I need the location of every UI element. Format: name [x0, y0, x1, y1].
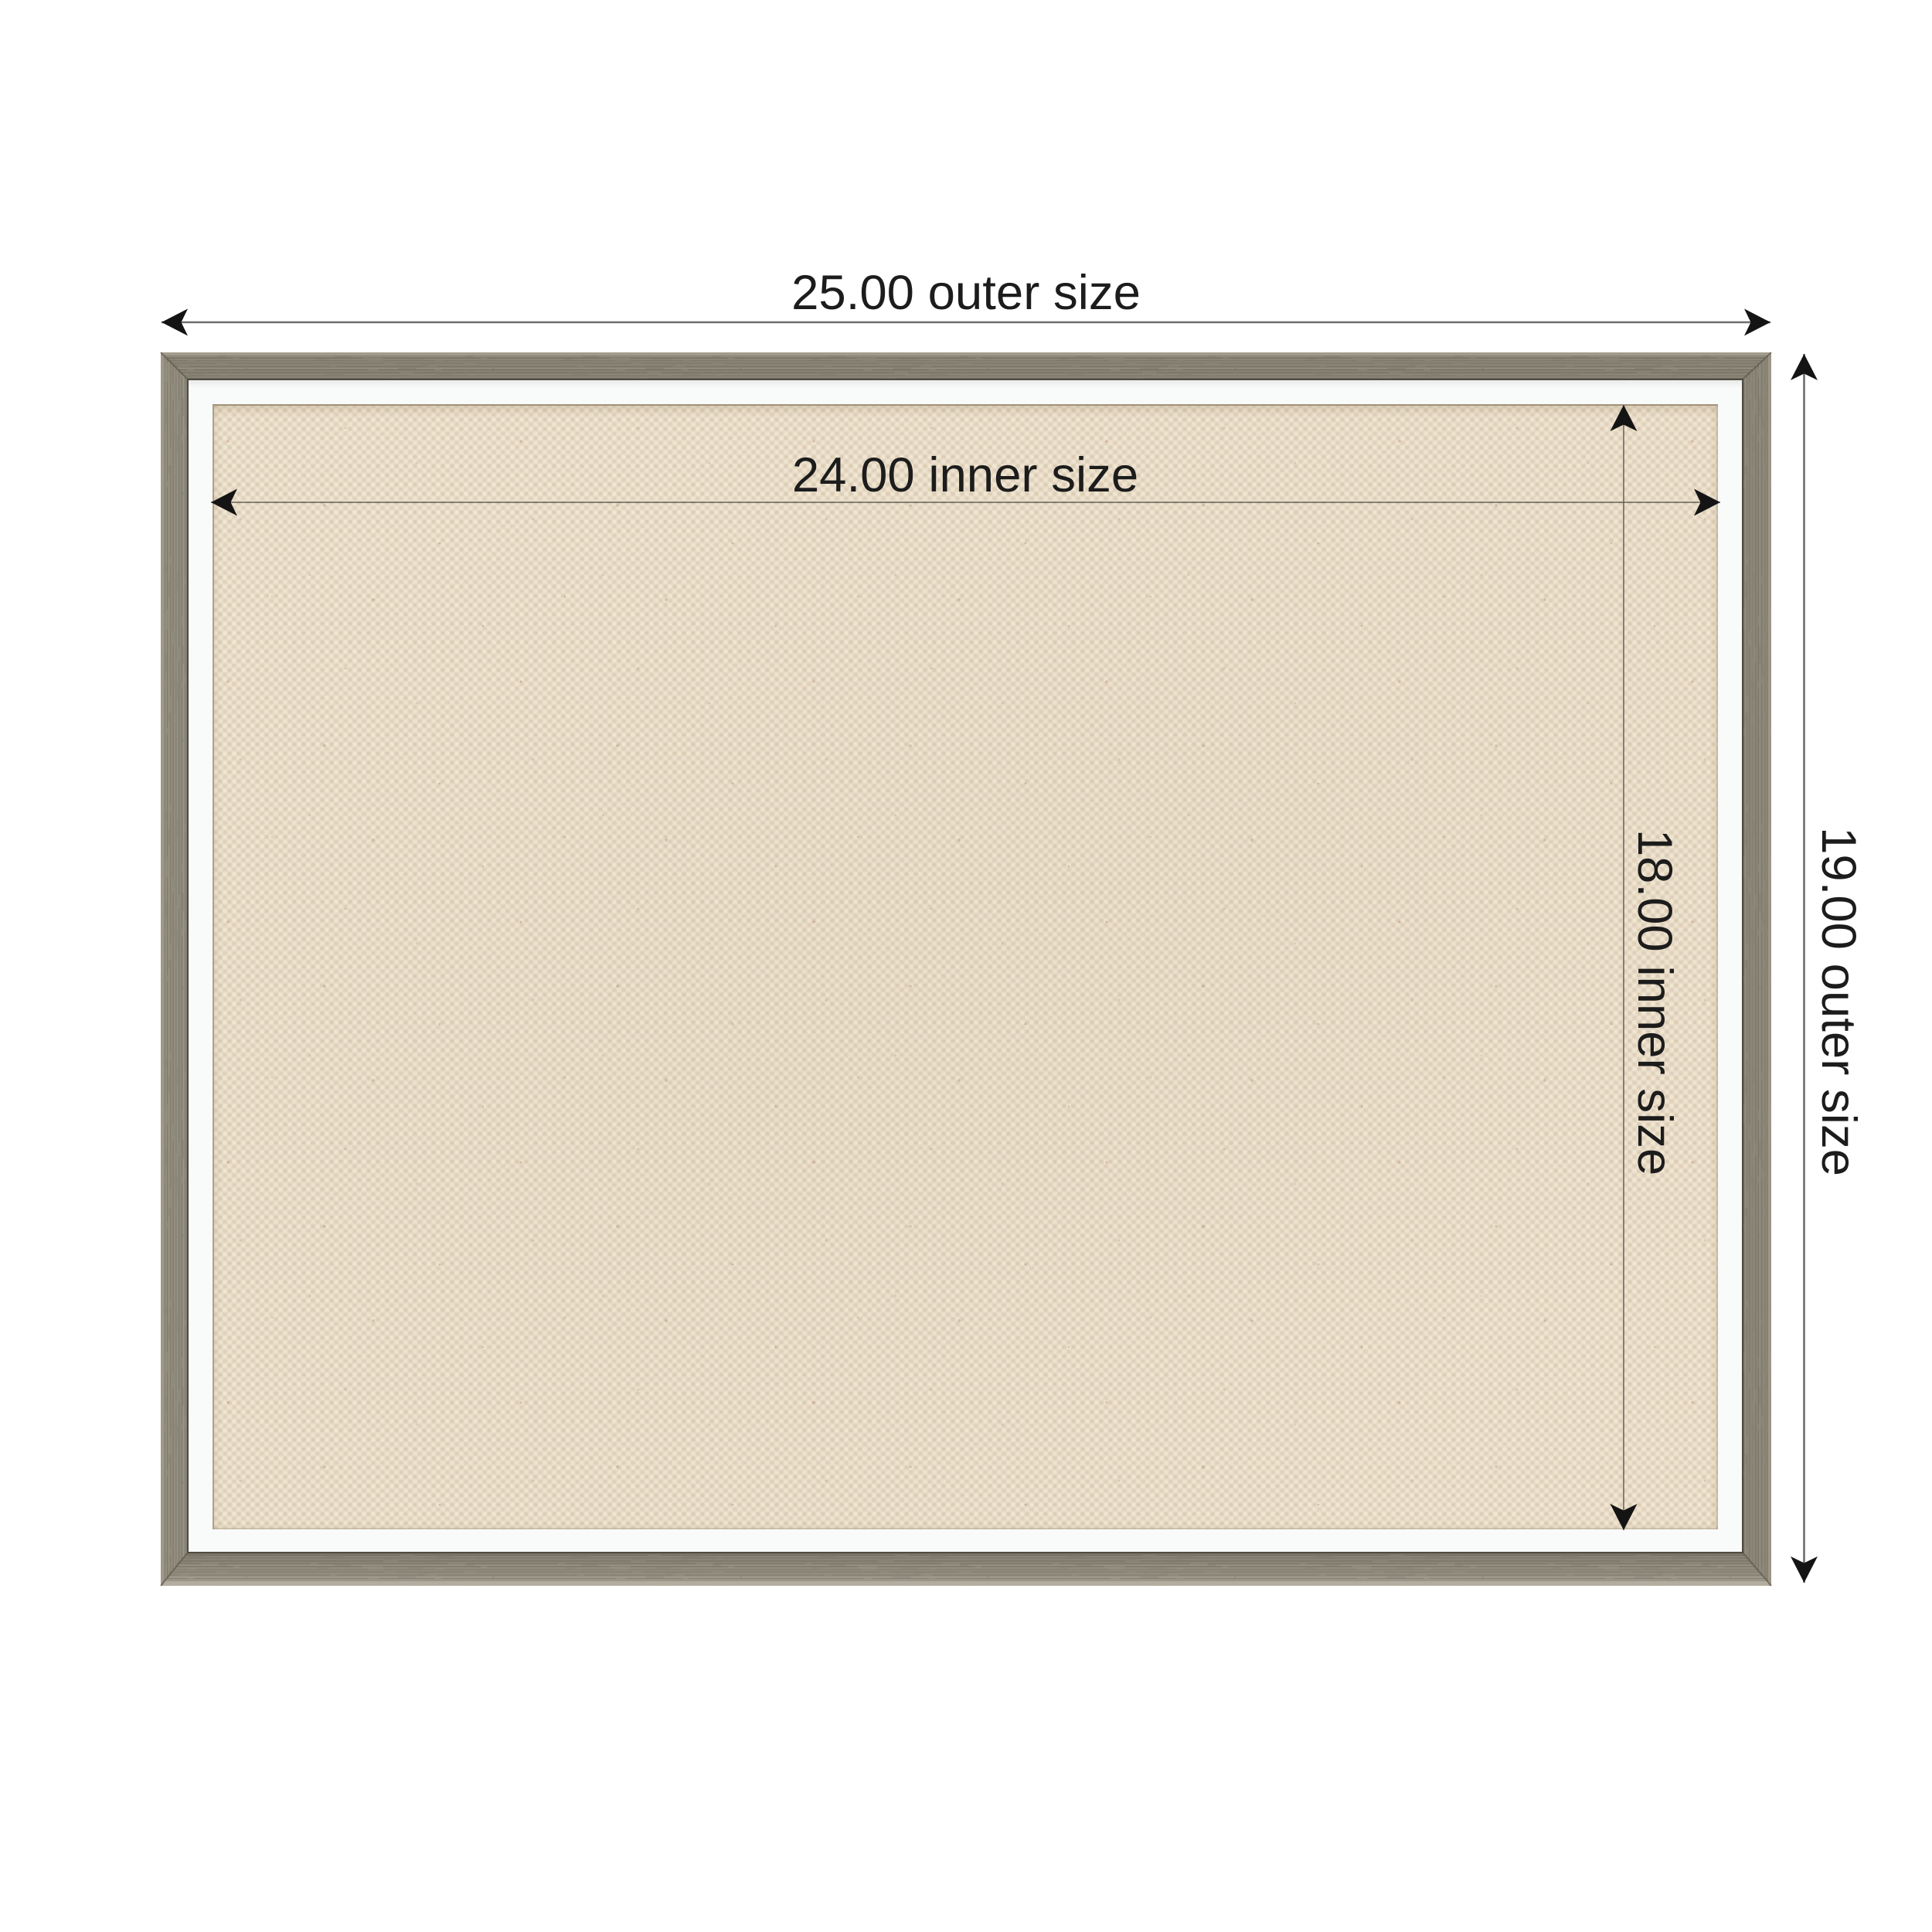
svg-text:25.00 outer size: 25.00 outer size — [791, 266, 1141, 320]
svg-text:19.00 outer size: 19.00 outer size — [1811, 827, 1866, 1176]
svg-text:18.00 inner size: 18.00 inner size — [1628, 829, 1682, 1175]
svg-text:24.00 inner size: 24.00 inner size — [792, 448, 1138, 502]
